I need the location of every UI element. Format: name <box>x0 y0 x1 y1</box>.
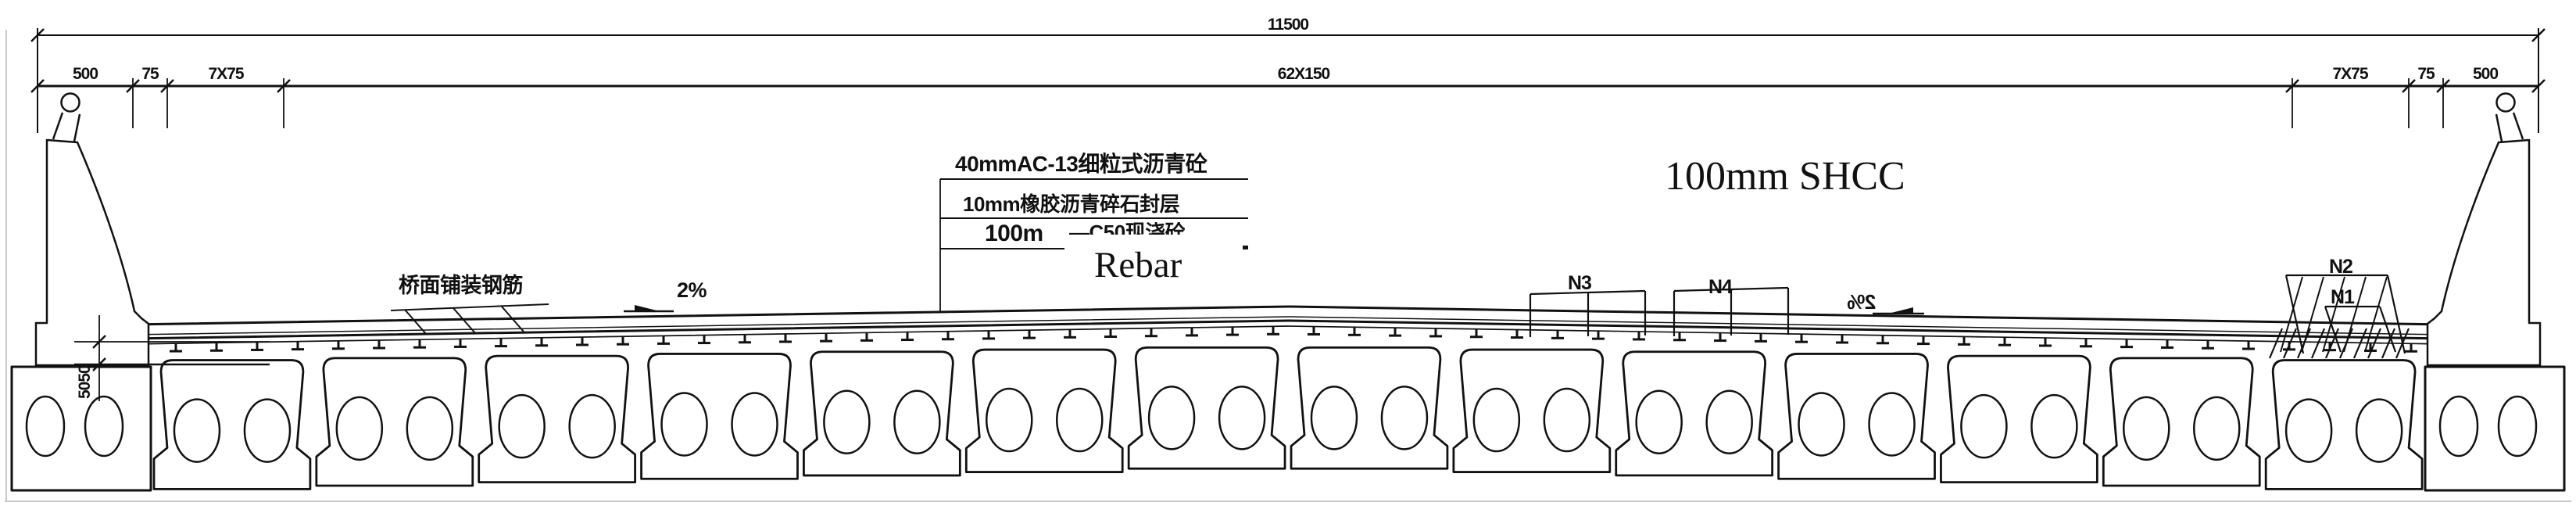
callout-n3: N3 <box>1568 274 1591 293</box>
layer-spec-line3: 100m <box>985 222 1043 246</box>
layer-spec-line3-obscured: —C50现浇砼 <box>1069 222 1185 235</box>
callout-n2: N2 <box>2329 257 2352 277</box>
callout-n1: N1 <box>2331 288 2354 307</box>
shcc-annotation: 100mm SHCC <box>1665 156 1905 197</box>
slope-label-right: 2% <box>1848 292 1877 312</box>
dim-total-width: 11500 <box>1268 16 1308 33</box>
left-parapet <box>36 94 148 366</box>
layer-spec-line2: 10mm橡胶沥青碎石封层 <box>963 194 1179 214</box>
dim-left-500: 500 <box>73 66 98 82</box>
dim-right-75: 75 <box>2417 66 2434 82</box>
dim-edge-vertical: 5050 <box>77 365 93 399</box>
deck-rebar-label: 桥面铺装钢筋 <box>399 275 523 296</box>
dim-right-7x75: 7X75 <box>2332 66 2367 82</box>
dim-center-spacing: 62X150 <box>1278 66 1329 82</box>
dim-right-500: 500 <box>2473 66 2498 82</box>
dim-left-75: 75 <box>141 66 158 82</box>
slope-label-left: 2% <box>677 280 707 301</box>
callout-n4: N4 <box>1708 278 1732 297</box>
dim-left-7x75: 7X75 <box>208 66 243 82</box>
bridge-cross-section-figure: 11500 62X150 500 75 7X75 7X75 75 500 505… <box>0 0 2576 506</box>
layer-spec-line1: 40mmAC-13细粒式沥青砼 <box>955 153 1207 175</box>
right-parapet <box>2428 94 2540 366</box>
rebar-annotation: Rebar <box>1094 247 1182 284</box>
